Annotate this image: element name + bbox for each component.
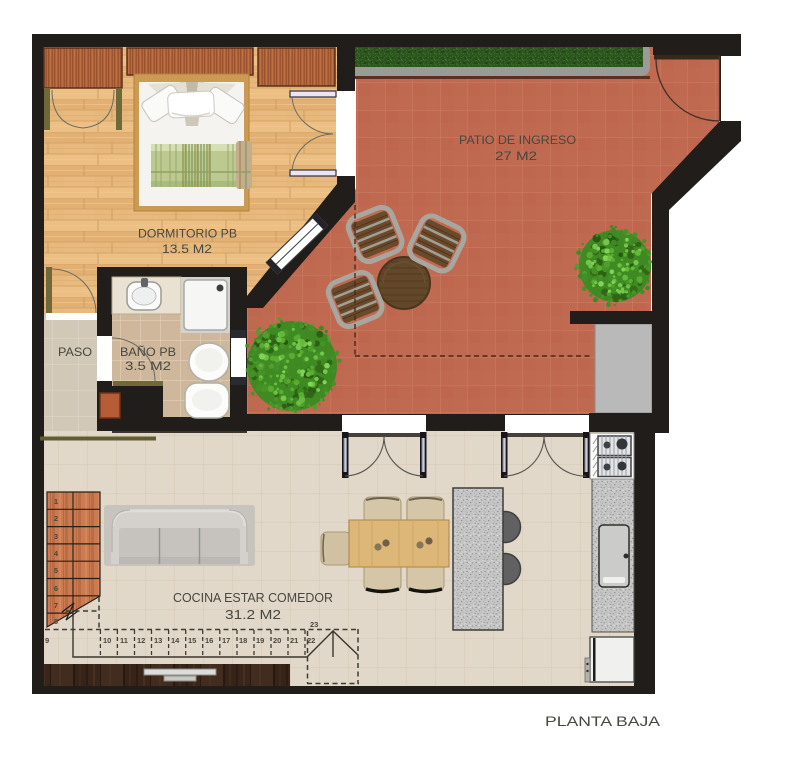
svg-text:21: 21 [290, 636, 298, 645]
svg-text:13.5 M2: 13.5 M2 [162, 242, 212, 256]
svg-text:8: 8 [54, 617, 58, 626]
svg-text:6: 6 [54, 584, 58, 593]
svg-text:18: 18 [239, 636, 247, 645]
svg-text:14: 14 [171, 636, 180, 645]
svg-text:PASO: PASO [58, 345, 92, 359]
svg-text:19: 19 [256, 636, 264, 645]
svg-text:27 M2: 27 M2 [495, 149, 537, 163]
svg-text:9: 9 [45, 636, 49, 645]
svg-text:20: 20 [273, 636, 281, 645]
svg-text:10: 10 [103, 636, 111, 645]
svg-text:15: 15 [188, 636, 196, 645]
svg-text:PATIO DE INGRESO: PATIO DE INGRESO [459, 133, 576, 147]
svg-text:12: 12 [137, 636, 145, 645]
svg-text:1: 1 [54, 497, 58, 506]
svg-text:PLANTA BAJA: PLANTA BAJA [545, 713, 661, 729]
svg-text:13: 13 [154, 636, 162, 645]
svg-text:3: 3 [54, 532, 58, 541]
svg-text:3.5 M2: 3.5 M2 [125, 359, 171, 373]
svg-text:7: 7 [54, 601, 58, 610]
svg-text:16: 16 [205, 636, 213, 645]
svg-text:31.2 M2: 31.2 M2 [225, 608, 281, 622]
svg-text:2: 2 [54, 514, 58, 523]
svg-text:COCINA ESTAR COMEDOR: COCINA ESTAR COMEDOR [173, 591, 333, 605]
svg-text:22: 22 [307, 636, 315, 645]
svg-text:17: 17 [222, 636, 230, 645]
svg-text:11: 11 [120, 636, 128, 645]
svg-text:BAÑO PB: BAÑO PB [120, 345, 176, 359]
svg-text:5: 5 [54, 566, 58, 575]
svg-text:DORMITORIO PB: DORMITORIO PB [138, 227, 237, 241]
svg-text:23: 23 [310, 620, 318, 629]
